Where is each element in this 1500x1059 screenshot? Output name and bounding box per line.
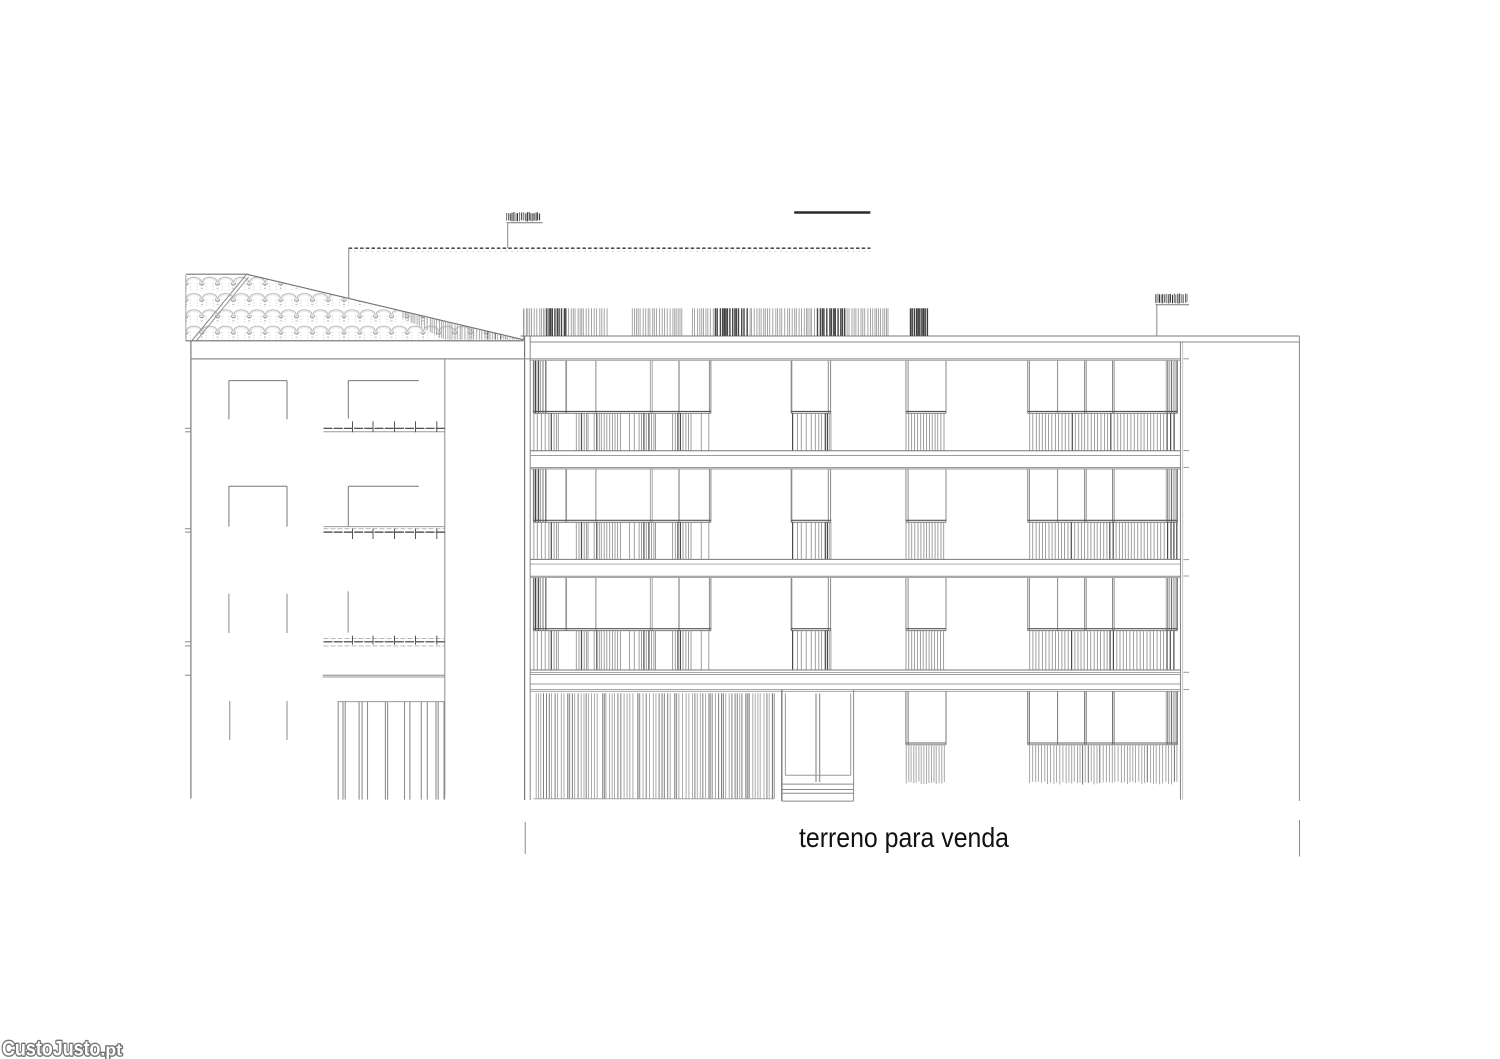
svg-text:terreno para venda: terreno para venda [799,822,1010,853]
